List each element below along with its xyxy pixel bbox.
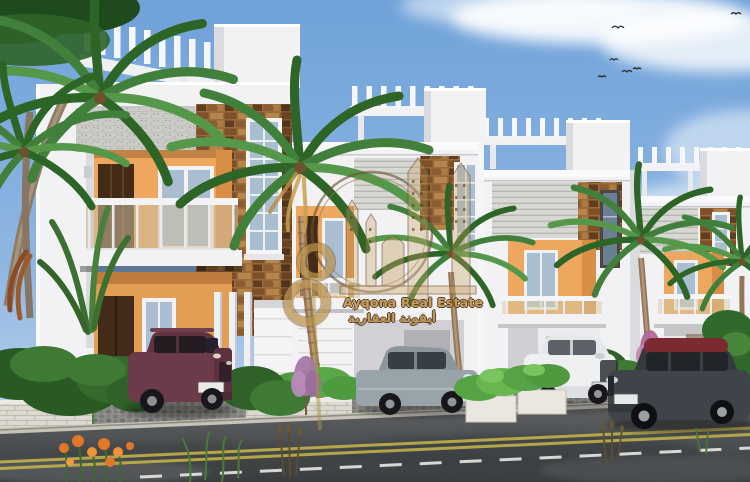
balcony-railing-1 [86,198,238,205]
roof-tower-3 [566,122,630,172]
roof-tower-2 [424,90,486,144]
render-scene [0,0,750,482]
real-estate-render: Ayqona Real Estate أيقونة العقارية [0,0,750,482]
